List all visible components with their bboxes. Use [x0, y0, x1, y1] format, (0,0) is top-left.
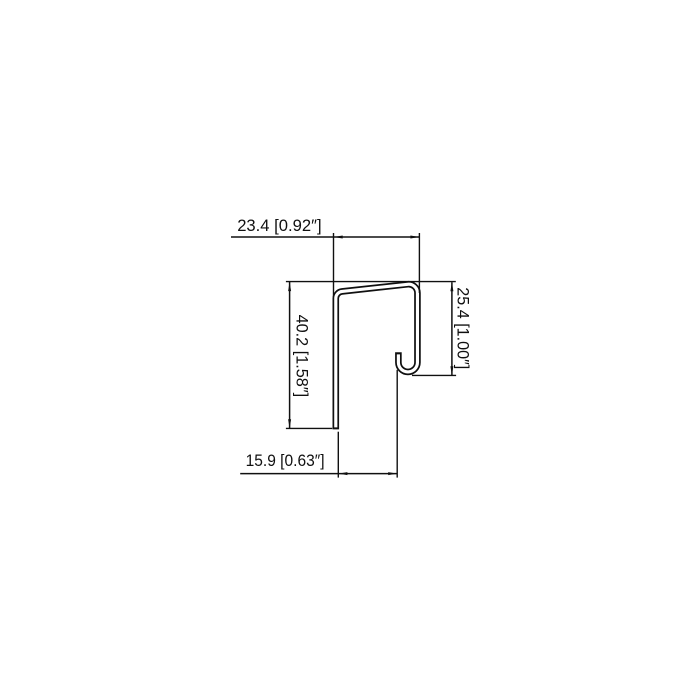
svg-text:15.9 [0.63″]: 15.9 [0.63″] — [246, 451, 325, 470]
svg-text:23.4 [0.92″]: 23.4 [0.92″] — [237, 216, 322, 235]
svg-text:40.2 [1.58″]: 40.2 [1.58″] — [293, 315, 312, 398]
svg-text:25.4 [1.00″]: 25.4 [1.00″] — [454, 287, 473, 369]
